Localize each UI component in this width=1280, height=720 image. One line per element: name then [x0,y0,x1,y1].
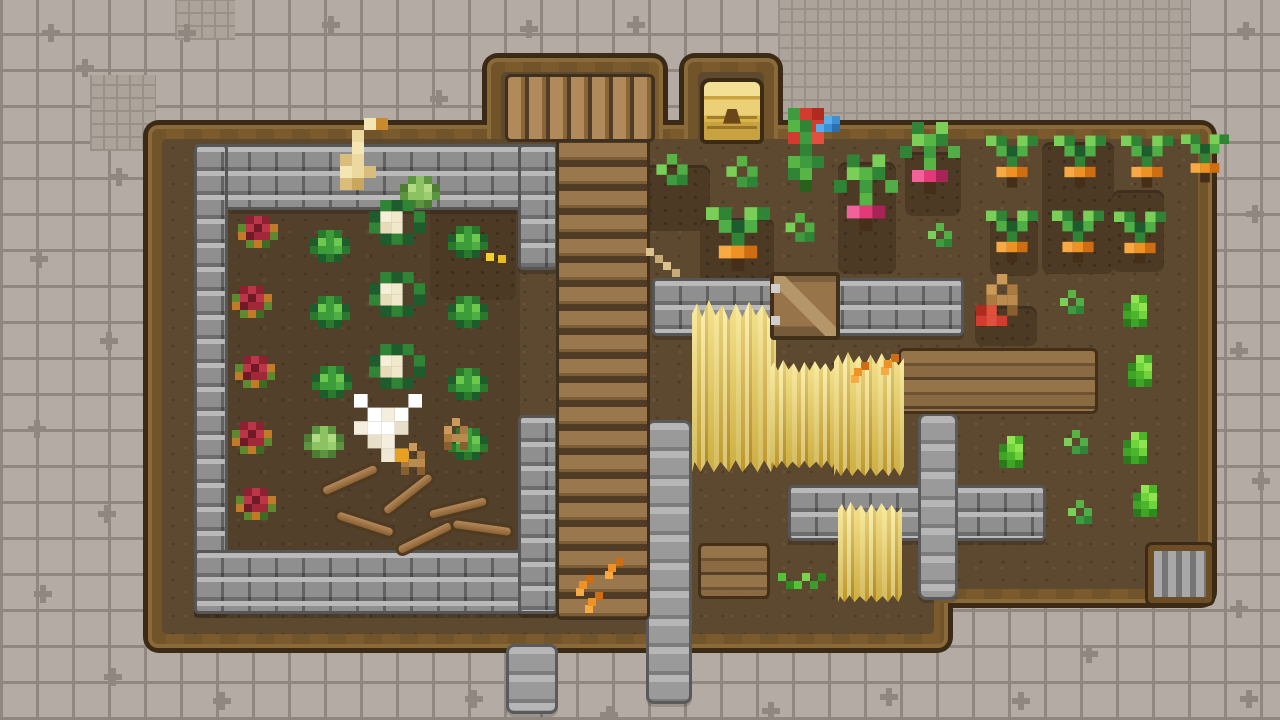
bush-plant[interactable] [1141,501,1149,509]
tile-plus-mark [1080,645,1098,663]
tile-plus-mark [213,692,231,710]
tilled-soil [905,152,961,216]
red-cabbage-crop[interactable] [252,504,260,512]
wheat-patch[interactable] [838,502,902,602]
tile-plus-mark [1230,600,1248,618]
cabbage-crop[interactable] [464,242,472,250]
tile-plus-mark [322,16,340,34]
garden-wall-left [194,144,228,614]
tile-plus-mark [627,16,645,34]
plank-platform [698,543,770,599]
carrot-crop[interactable] [732,246,745,259]
radish-crop[interactable] [924,170,936,182]
cauliflower-crop[interactable] [391,366,402,377]
cauliflower-crop[interactable] [391,222,402,233]
tile-plus-mark [880,688,898,706]
garden-wall-right-upper [518,144,558,270]
cabbage-crop[interactable] [328,382,336,390]
tile-plus-mark [1252,472,1270,490]
tile-plus-mark [28,420,46,438]
red-cabbage-crop[interactable] [248,302,256,310]
white-goose[interactable] [381,421,395,435]
tile-plus-mark [42,24,60,42]
tile-plus-mark [1012,692,1030,710]
stone-path-south-exit [506,644,558,714]
tile-plus-mark [430,90,448,108]
tomato-plant[interactable] [800,156,812,168]
bush-plant[interactable] [1007,452,1015,460]
carrot-crop[interactable] [1073,242,1083,252]
tile-plus-mark [520,20,538,38]
sprout-crop[interactable] [1076,516,1084,524]
grass-tuft[interactable] [794,581,802,589]
bush-plant[interactable] [1136,371,1144,379]
cabbage-crop[interactable] [326,246,334,254]
tile-plus-mark [76,59,94,77]
wheat-patch[interactable] [692,300,776,472]
dropped-item[interactable] [884,360,892,368]
garden-wall-bottom [194,550,558,614]
red-cabbage-crop[interactable] [254,232,262,240]
tile-plus-mark [1240,690,1258,708]
tile-plus-mark [104,668,122,686]
tile-plus-mark [1230,342,1248,360]
tile-plus-mark [178,24,196,42]
radish-crop[interactable] [860,206,873,219]
forage-item[interactable] [663,262,671,270]
tile-plus-mark [762,702,780,720]
stone-path-vertical-center [646,420,692,704]
sprout-crop[interactable] [1072,446,1080,454]
cabbage-crop[interactable] [326,312,334,320]
dropped-item[interactable] [588,598,596,606]
gopher[interactable] [409,459,417,467]
gopher[interactable] [452,434,460,442]
dropped-item[interactable] [579,581,587,589]
cream-goose[interactable] [352,166,364,178]
plank-path [556,138,650,620]
blue-bird[interactable] [824,124,832,132]
log-path [505,74,655,142]
tilled-soil [1112,190,1164,272]
tile-plus-mark [1237,22,1255,40]
garden-wall-right-lower [518,415,558,614]
wooden-gate[interactable] [770,272,840,340]
tile-plus-mark [30,250,48,268]
cabbage-crop[interactable] [464,444,472,452]
dropped-item[interactable] [854,368,862,376]
tile-plus-mark [1246,205,1264,223]
stone-path-vertical-right [918,413,958,600]
carrot-crop[interactable] [1007,167,1017,177]
tilled-soil [975,306,1037,346]
bush-plant[interactable] [1131,448,1139,456]
sprout-crop[interactable] [1068,306,1076,314]
sprout-crop[interactable] [936,239,944,247]
sprout-crop[interactable] [667,175,677,185]
tilled-soil [1042,142,1114,274]
tile-plus-mark [600,706,618,720]
carrot-crop[interactable] [1075,167,1085,177]
field-wall-south [788,485,1046,541]
garden-wall-top [194,144,558,210]
red-cabbage-crop[interactable] [251,372,259,380]
bush-plant[interactable] [1131,311,1139,319]
carrot-crop[interactable] [1007,242,1017,252]
tile-plus-mark [98,505,116,523]
game-scene [0,0,1280,720]
cabbage-crop[interactable] [464,312,472,320]
drain-grate[interactable] [1148,545,1212,603]
carrot-crop[interactable] [1135,243,1145,253]
tile-plus-mark [465,690,483,708]
wheat-patch[interactable] [834,352,904,476]
tile-plus-mark [100,332,118,350]
dropped-item[interactable] [486,253,494,261]
tile-plus-mark [110,168,128,186]
carrot-crop[interactable] [1142,167,1152,177]
carrot-crop[interactable] [1200,163,1210,173]
treasure-chest[interactable] [700,78,764,144]
cabbage-crop[interactable] [464,384,472,392]
sprout-crop[interactable] [737,177,747,187]
cauliflower-crop[interactable] [391,294,402,305]
plank-platform [898,348,1098,414]
tile-plus-mark [34,585,52,603]
light-cabbage-crop[interactable] [320,442,328,450]
wheat-patch[interactable] [770,360,836,468]
gopher-with-tomato[interactable] [997,295,1007,305]
light-cabbage-crop[interactable] [416,192,424,200]
dropped-item[interactable] [608,564,616,572]
sprout-crop[interactable] [795,232,805,242]
forage-item[interactable] [646,248,654,256]
red-cabbage-crop[interactable] [248,438,256,446]
